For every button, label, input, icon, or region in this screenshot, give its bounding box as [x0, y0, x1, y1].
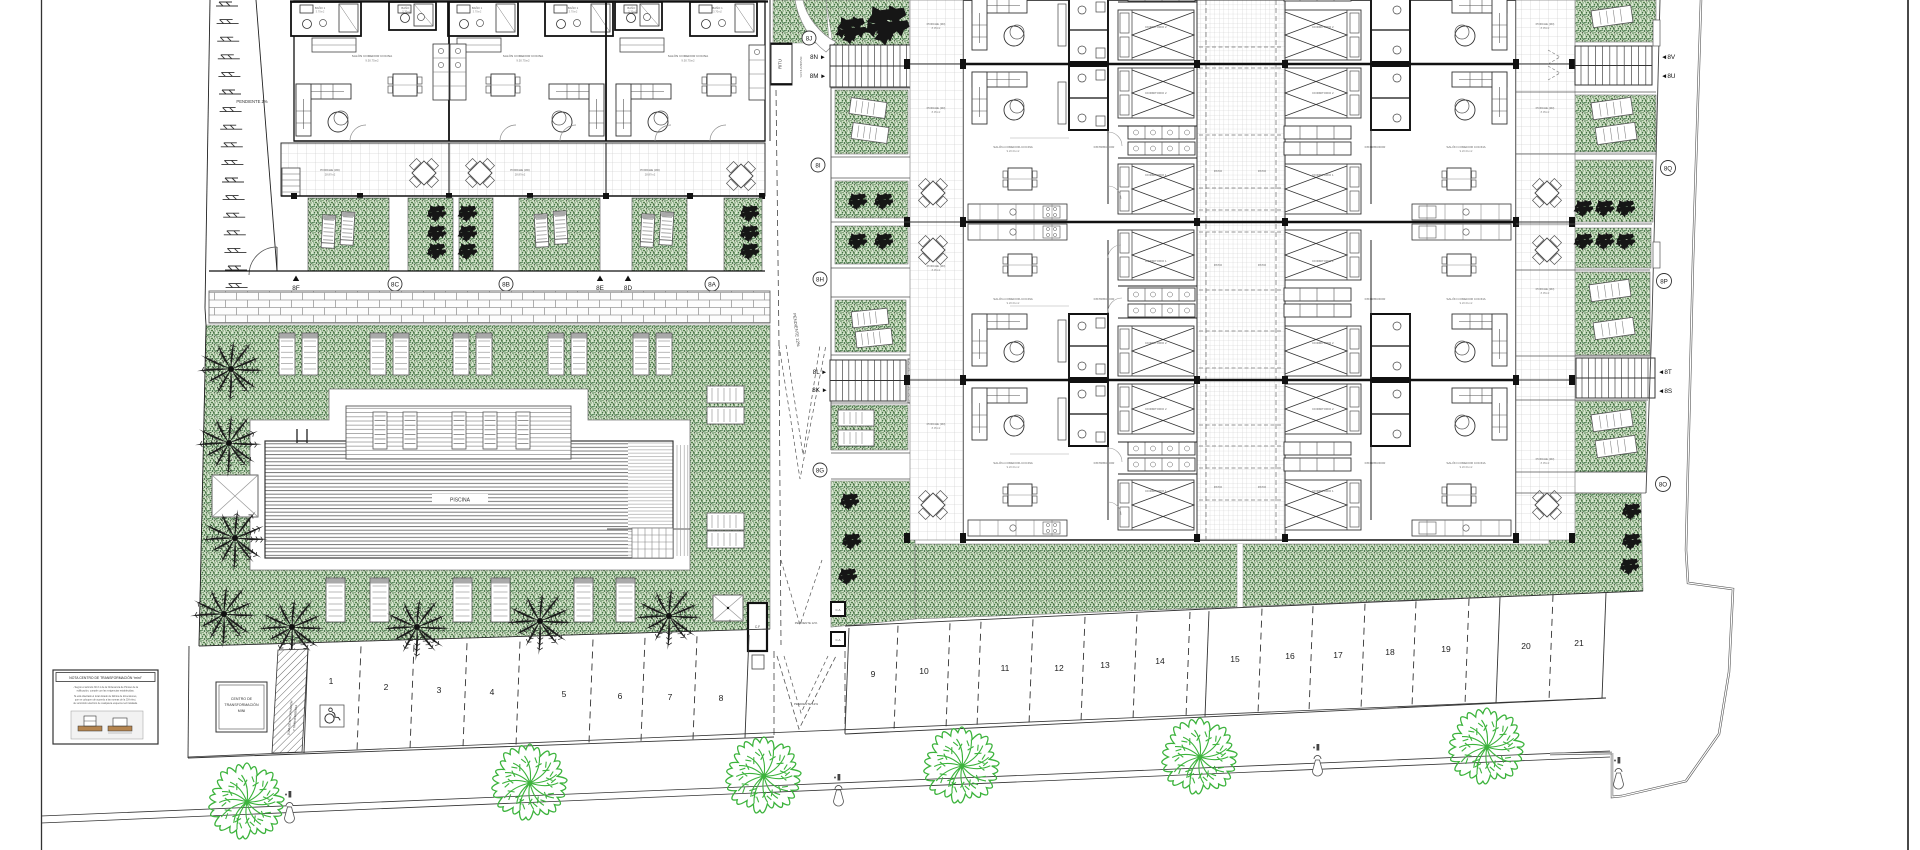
svg-text:8J: 8J	[806, 36, 813, 43]
svg-text:DISTRIBUIDOR: DISTRIBUIDOR	[1094, 145, 1115, 149]
svg-text:SALÓN COMEDOR COCINA: SALÓN COMEDOR COCINA	[352, 53, 393, 58]
svg-text:PORCHE (3D): PORCHE (3D)	[927, 106, 946, 110]
svg-text:BAÑO 1: BAÑO 1	[627, 5, 638, 10]
svg-text:PORCHE (3D): PORCHE (3D)	[320, 168, 340, 172]
svg-text:9.20.01m2: 9.20.01m2	[1460, 149, 1473, 153]
svg-text:DISTRIBUIDOR: DISTRIBUIDOR	[1365, 145, 1386, 149]
svg-text:PORCHE (3D): PORCHE (3D)	[927, 264, 946, 268]
svg-text:13: 13	[1100, 660, 1110, 670]
svg-text:PORCHE (3D): PORCHE (3D)	[640, 168, 660, 172]
svg-text:8Q: 8Q	[1664, 166, 1672, 173]
svg-text:C.A: C.A	[835, 638, 840, 642]
svg-text:MINI: MINI	[238, 709, 246, 713]
svg-text:DORMITORIO 2: DORMITORIO 2	[1145, 341, 1167, 345]
svg-text:8.05m2: 8.05m2	[1541, 26, 1550, 30]
svg-text:edificación, cumple con las ex: edificación, cumple con las exigencias e…	[77, 690, 135, 693]
svg-text:8I: 8I	[815, 163, 820, 170]
svg-text:SALÓN-COMEDOR-COCINA: SALÓN-COMEDOR-COCINA	[993, 296, 1033, 301]
svg-text:BAÑO 1: BAÑO 1	[712, 5, 723, 10]
svg-text:DORMITORIO 2: DORMITORIO 2	[1312, 341, 1334, 345]
svg-text:DORMITORIO 2: DORMITORIO 2	[1145, 25, 1167, 29]
svg-text:8: 8	[719, 693, 724, 703]
svg-text:8H: 8H	[816, 277, 824, 284]
svg-text:10: 10	[919, 666, 929, 676]
svg-text:SALÓN COMEDOR COCINA: SALÓN COMEDOR COCINA	[1446, 296, 1485, 301]
svg-text:8.05m2: 8.05m2	[932, 426, 941, 430]
svg-text:TRANSFORMACIÓN: TRANSFORMACIÓN	[224, 702, 259, 707]
svg-text:DORMITORIO 1: DORMITORIO 1	[1145, 173, 1167, 177]
svg-text:DORMITORIO 1: DORMITORIO 1	[1312, 259, 1334, 263]
svg-text:PORCHE (3D): PORCHE (3D)	[1536, 106, 1555, 110]
svg-text:◄8V: ◄8V	[1661, 54, 1676, 61]
svg-text:PORCHE (3D): PORCHE (3D)	[927, 422, 946, 426]
svg-text:9.20.01m2: 9.20.01m2	[1007, 149, 1020, 153]
svg-text:8.05m2: 8.05m2	[1541, 291, 1550, 295]
svg-text:DORMITORIO 2: DORMITORIO 2	[1312, 407, 1334, 411]
svg-text:3: 3	[437, 685, 442, 695]
svg-text:◄8T: ◄8T	[1658, 369, 1672, 376]
svg-text:DISTRIBUIDOR: DISTRIBUIDOR	[1365, 461, 1386, 465]
svg-text:DORMITORIO 2: DORMITORIO 2	[1312, 25, 1334, 29]
svg-text:2: 2	[384, 682, 389, 692]
svg-text:8A: 8A	[708, 282, 717, 289]
svg-text:BAÑO 1: BAÑO 1	[401, 5, 412, 10]
svg-text:19: 19	[1441, 644, 1451, 654]
svg-text:8B: 8B	[502, 282, 510, 289]
svg-text:DORMITORIO 1: DORMITORIO 1	[1145, 259, 1167, 263]
svg-text:DORMITORIO 1: DORMITORIO 1	[1312, 173, 1334, 177]
svg-text:BAÑO 1: BAÑO 1	[315, 5, 326, 10]
svg-text:9.20.01m2: 9.20.01m2	[1007, 301, 1020, 305]
svg-text:DORMITORIO 2: DORMITORIO 2	[1145, 91, 1167, 95]
svg-text:9.20.01m2: 9.20.01m2	[1460, 465, 1473, 469]
svg-text:8.05m2: 8.05m2	[932, 26, 941, 30]
svg-text:PENDIENTE 12%: PENDIENTE 12%	[794, 702, 818, 706]
svg-text:PENDIENTE 12%: PENDIENTE 12%	[795, 621, 818, 625]
svg-text:◄8U: ◄8U	[1661, 73, 1676, 80]
svg-text:8L ►: 8L ►	[813, 369, 828, 376]
svg-text:PATIO: PATIO	[1258, 263, 1267, 267]
svg-text:BAÑO 1: BAÑO 1	[472, 5, 483, 10]
svg-text:SALÓN COMEDOR COCINA: SALÓN COMEDOR COCINA	[1446, 144, 1485, 149]
svg-text:15: 15	[1230, 654, 1240, 664]
svg-text:DORMITORIO 2: DORMITORIO 2	[1312, 91, 1334, 95]
svg-text:SALÓN COMEDOR COCINA: SALÓN COMEDOR COCINA	[668, 53, 709, 58]
svg-text:8G: 8G	[816, 468, 824, 475]
svg-text:SALÓN COMEDOR COCINA: SALÓN COMEDOR COCINA	[503, 53, 544, 58]
svg-text:8O: 8O	[1659, 482, 1667, 489]
svg-text:6: 6	[618, 691, 623, 701]
svg-text:9: 9	[871, 669, 876, 679]
svg-text:PENDIENTE 2%: PENDIENTE 2%	[236, 99, 267, 104]
svg-text:PATIO: PATIO	[1214, 485, 1223, 489]
svg-text:7: 7	[668, 692, 673, 702]
svg-text:14: 14	[1155, 656, 1165, 666]
svg-text:SALÓN-COMEDOR-COCINA: SALÓN-COMEDOR-COCINA	[993, 144, 1033, 149]
svg-text:PATIO: PATIO	[1214, 263, 1223, 267]
svg-text:de suministro eléctrico de cua: de suministro eléctrico de cualquiera es…	[73, 702, 138, 705]
svg-text:DISTRIBUIDOR: DISTRIBUIDOR	[1094, 461, 1115, 465]
svg-text:PORCHE (3D): PORCHE (3D)	[510, 168, 530, 172]
svg-text:8K ►: 8K ►	[812, 387, 827, 394]
svg-text:3.70m2: 3.70m2	[402, 10, 411, 14]
svg-text:5: 5	[562, 689, 567, 699]
svg-text:8.05m2: 8.05m2	[1541, 110, 1550, 114]
svg-text:DISTRIBUIDOR: DISTRIBUIDOR	[1365, 297, 1386, 301]
svg-text:3.70m2: 3.70m2	[473, 10, 482, 14]
svg-text:28.87m2: 28.87m2	[325, 173, 336, 177]
svg-text:11: 11	[1001, 663, 1010, 673]
svg-text:28.87m2: 28.87m2	[645, 173, 656, 177]
svg-text:DISTRIBUIDOR: DISTRIBUIDOR	[1094, 297, 1115, 301]
svg-text:9.20.01m2: 9.20.01m2	[1007, 465, 1020, 469]
svg-text:PATIO: PATIO	[1258, 169, 1267, 173]
svg-text:◄8S: ◄8S	[1658, 388, 1672, 395]
svg-text:3.70m2: 3.70m2	[316, 10, 325, 14]
svg-text:1: 1	[329, 676, 334, 686]
svg-text:17: 17	[1333, 650, 1343, 660]
svg-text:20: 20	[1521, 641, 1531, 651]
svg-text:RITU: RITU	[778, 59, 783, 69]
svg-text:DORMITORIO 2: DORMITORIO 2	[1145, 407, 1167, 411]
svg-text:18: 18	[1385, 647, 1395, 657]
svg-text:4: 4	[490, 687, 495, 697]
svg-text:DORMITORIO 1: DORMITORIO 1	[1145, 489, 1167, 493]
svg-text:NOTA CENTRO DE TRANSFORMACIÓN: NOTA CENTRO DE TRANSFORMACIÓN “mini”	[69, 675, 141, 680]
svg-text:21: 21	[1574, 638, 1584, 648]
svg-text:PORCHE (3D): PORCHE (3D)	[1536, 22, 1555, 26]
svg-text:8P: 8P	[1660, 279, 1668, 286]
svg-text:BAÑO 1: BAÑO 1	[568, 5, 579, 10]
svg-text:8N ►: 8N ►	[810, 54, 826, 61]
svg-text:PENDIENTE 10%: PENDIENTE 10%	[799, 57, 803, 78]
svg-text:3.70m2: 3.70m2	[713, 10, 722, 14]
svg-text:12: 12	[1054, 663, 1064, 673]
svg-text:28.87m2: 28.87m2	[515, 173, 526, 177]
svg-text:C.F: C.F	[755, 625, 760, 629]
svg-text:C.A: C.A	[835, 608, 840, 612]
svg-text:9.20.01m2: 9.20.01m2	[1460, 301, 1473, 305]
svg-text:PISCINA: PISCINA	[450, 498, 471, 504]
svg-text:PORCHE (3D): PORCHE (3D)	[1536, 287, 1555, 291]
svg-text:CENTRO DE: CENTRO DE	[231, 697, 253, 701]
svg-text:9.50.75m2: 9.50.75m2	[365, 59, 379, 63]
svg-text:3.70m2: 3.70m2	[628, 10, 637, 14]
svg-text:PATIO: PATIO	[1214, 169, 1223, 173]
svg-text:16: 16	[1285, 651, 1295, 661]
svg-text:PORCHE (3D): PORCHE (3D)	[1536, 457, 1555, 461]
svg-text:8C: 8C	[391, 282, 400, 289]
svg-text:8.05m2: 8.05m2	[932, 110, 941, 114]
svg-text:PATIO: PATIO	[1258, 485, 1267, 489]
svg-text:8.05m2: 8.05m2	[1541, 461, 1550, 465]
svg-text:SALÓN-COMEDOR-COCINA: SALÓN-COMEDOR-COCINA	[993, 460, 1033, 465]
svg-text:3.70m2: 3.70m2	[569, 10, 578, 14]
svg-text:9.50.75m2: 9.50.75m2	[516, 59, 530, 63]
svg-text:8M ►: 8M ►	[810, 73, 826, 80]
svg-text:PORCHE (3D): PORCHE (3D)	[927, 22, 946, 26]
svg-text:9.50.75m2: 9.50.75m2	[681, 59, 695, 63]
svg-text:8.05m2: 8.05m2	[932, 268, 941, 272]
svg-text:SALÓN COMEDOR COCINA: SALÓN COMEDOR COCINA	[1446, 460, 1485, 465]
svg-text:DORMITORIO 1: DORMITORIO 1	[1312, 489, 1334, 493]
